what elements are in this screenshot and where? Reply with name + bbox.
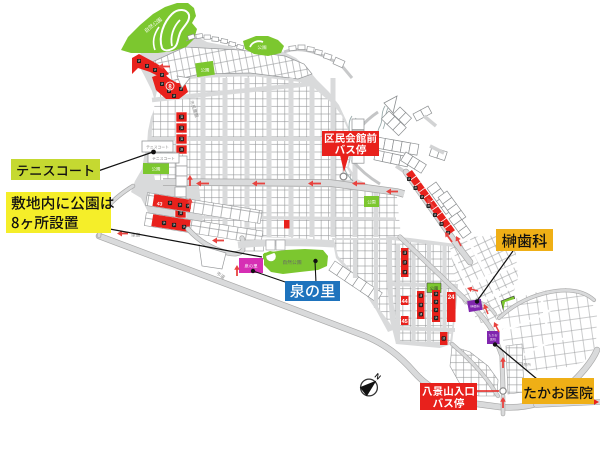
svg-text:24: 24 [448, 295, 455, 301]
svg-text:45: 45 [402, 319, 408, 325]
svg-text:44: 44 [402, 299, 409, 305]
